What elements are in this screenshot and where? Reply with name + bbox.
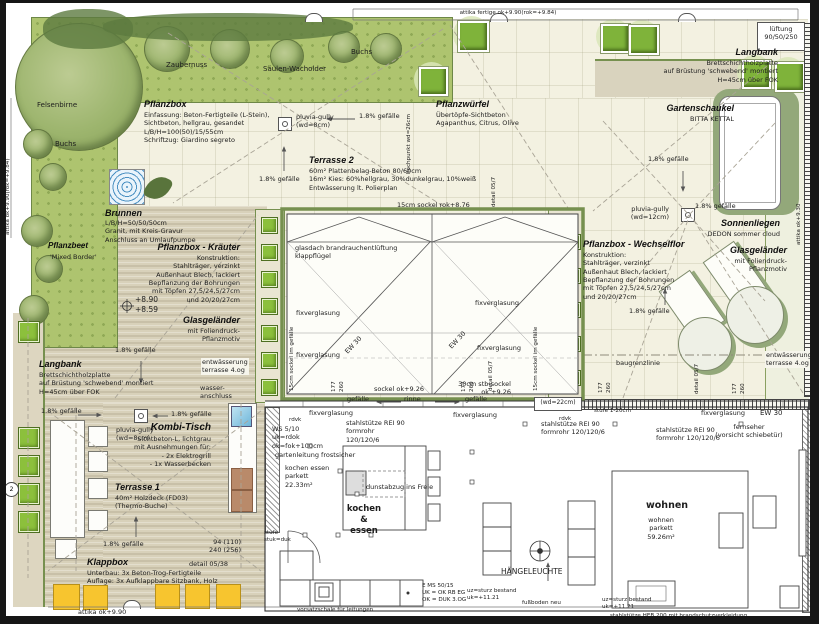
slope-label: 1.8% gefälle xyxy=(171,410,212,418)
glasgelaender-left-title: Glasgeländer xyxy=(183,315,240,327)
detail-057-label: detail 05/7 xyxy=(491,177,498,207)
pluvia-gully-8-label: pluvia-gully (wd=8cm) xyxy=(296,113,334,130)
pflanzwuerfel-icon xyxy=(601,24,630,53)
fixverglasung-label: fixverglasung xyxy=(309,409,353,417)
sonnenliege-icon xyxy=(678,317,732,371)
plant-box-icon xyxy=(261,325,278,342)
plant-box-icon xyxy=(261,298,278,315)
uz-sturz-label: uz=sturz bestand uk=+11.21 xyxy=(602,597,651,611)
fixverglasung-label: fixverglasung xyxy=(453,411,497,419)
chair-icon xyxy=(88,510,108,531)
plant-box-icon xyxy=(565,302,581,318)
pflanzwuerfel-icon xyxy=(419,67,448,96)
stahlstuetze-label: stahlstütze REI 90 formrohr 120/120/6 xyxy=(541,420,605,437)
sonnenliegen-body: DEDON sommer cloud xyxy=(707,230,780,238)
langbank-right-body: Brettschichtholzplatte auf Brüstung 'sch… xyxy=(664,59,778,84)
elektrogrill-icon xyxy=(231,490,253,512)
vorsatzschale-label: vorsatzschale für leitungen xyxy=(297,607,373,614)
tree-label-felsenbirne: Felsenbirne xyxy=(37,101,77,110)
section-marker-icon xyxy=(678,13,696,22)
glasgelaender-right-title: Glasgeländer xyxy=(730,245,787,257)
wd22-box: (wd=22cm) xyxy=(534,397,582,411)
pflanzwuerfel-icon xyxy=(629,25,659,55)
slope-label: 1.8% gefälle xyxy=(103,540,144,548)
hedge-icon xyxy=(43,9,133,49)
pflanzbeet-sub: 'Mixed Border' xyxy=(50,253,97,261)
height-points-label: +8.90 +8.59 xyxy=(135,295,158,314)
klappbox-body: Unterbau: 3x Beton-Trog-Fertigteile Aufl… xyxy=(87,569,218,586)
sockel-top-label: 15cm sockel rok+8.76 xyxy=(397,201,470,209)
wohnen-title-label: wohnen xyxy=(646,500,688,512)
wasserbecken-icon xyxy=(231,406,252,427)
detail-057-label: detail 05/7 xyxy=(488,361,495,391)
pflanzbox-title: Pflanzbox xyxy=(144,99,187,111)
section-marker-2: 2 xyxy=(4,482,19,497)
pflanzbeet-title: Pflanzbeet xyxy=(48,241,88,251)
gartenschaukel-title: Gartenschaukel xyxy=(666,103,734,115)
pluvia-gully-12-label: pluvia-gully (wd=12cm) xyxy=(631,205,669,222)
plant-box-icon xyxy=(261,217,278,234)
dining-table-icon xyxy=(50,420,85,538)
plant-box-icon xyxy=(261,379,278,396)
pflanzbox-body: Einfassung: Beton-Fertigteile (L-Stein),… xyxy=(144,111,270,144)
pflanzwuerfel-body: Übertöpfe-Sichtbeton Agapanthus, Citrus,… xyxy=(436,111,519,128)
wasseranschluss-label: wasser- anschluss xyxy=(200,384,232,401)
elektrogrill-icon xyxy=(231,468,253,490)
dim-260-label: 260 xyxy=(469,381,476,392)
tree-label-buchs2: Buchs xyxy=(351,48,372,57)
langbank-right-title: Langbank xyxy=(735,47,778,59)
plant-box-icon xyxy=(551,217,567,233)
ems-label: E MS 50/15 UK = OK RB EG OK = DUK 3.OG xyxy=(422,583,466,604)
attika-right-label: attika ok+9.30 xyxy=(796,203,803,245)
pflanzwuerfel-icon xyxy=(458,21,489,52)
terrasse2-body: 60m² Plattenbelag-Beton 80/60cm 16m² Kie… xyxy=(309,167,476,192)
stahlstuetze-label: stahlstütze REI 90 formrohr 120/120/6 xyxy=(346,419,405,444)
plant-box-icon xyxy=(261,271,278,288)
brunnen-body: L/B/H=50/50/50cm Granit, mit Kreis-Gravu… xyxy=(105,219,196,244)
hochpunkt-label: hochpunkt wd=26cm xyxy=(406,114,413,174)
glasdach-label: glasdach brandrauchentlüftung klappflüge… xyxy=(295,244,397,261)
plant-box-icon xyxy=(551,319,567,335)
klappbox-seat-icon xyxy=(185,584,210,609)
ew30-label: EW 30 xyxy=(760,409,782,418)
detail-0538-label: detail 05/38 xyxy=(189,560,228,568)
attika-top-label: attika fertige ok+9.90(rok=+9.84) xyxy=(383,10,633,17)
slope-label: 1.8% gefälle xyxy=(41,407,82,415)
klappbox-seat-icon xyxy=(53,584,80,610)
plan-sheet: 2 lüftung 90/50/250 (wd=22cm) attika fer… xyxy=(3,3,812,616)
pflanzwuerfel-icon xyxy=(775,62,805,92)
shrub-icon xyxy=(39,163,67,191)
fixverglasung-label: fixverglasung xyxy=(477,344,521,352)
frame-bottom xyxy=(0,616,819,624)
section-marker-icon xyxy=(305,13,323,22)
sonnenliegen-title: Sonnenliegen xyxy=(721,218,780,230)
dim-94-240-label: 94 (110) 240 (256) xyxy=(209,538,241,555)
pflanzbox-wechselflor-title: Pflanzbox - Wechselflor xyxy=(583,239,684,251)
dim-260-label: 260 xyxy=(606,382,613,393)
langbank-left-body: Brettschichtholzplatte auf Brüstung 'sch… xyxy=(39,371,153,396)
dim-177-label: 177 xyxy=(598,382,605,393)
klappbox-seat-icon xyxy=(155,584,180,609)
lueftung-label: lüftung 90/50/250 xyxy=(758,25,804,42)
rinne-label: rinne xyxy=(404,395,421,403)
frame-top xyxy=(0,0,819,3)
pluvia-gully-icon xyxy=(134,409,148,423)
shrub-icon xyxy=(370,33,402,65)
fixverglasung-label: fixverglasung xyxy=(296,351,340,359)
langbank-left-title: Langbank xyxy=(39,359,82,371)
entwaesserung-left-label: entwässerung terrasse 4.og xyxy=(201,358,249,375)
pluvia-gully-icon xyxy=(681,208,695,222)
dunstabzug-label: dunstabzug ins Freie xyxy=(366,483,433,491)
terrasse1-body: 40m² Holzdeck (FD03) (Thermo-Buche) xyxy=(115,494,188,511)
plant-box-icon xyxy=(565,336,581,352)
tree-label-buchs: Buchs xyxy=(55,140,76,149)
plant-box-icon xyxy=(261,244,278,261)
attika-left-label: attika ok+9.90(rok=+9.84) xyxy=(5,158,12,235)
chair-icon xyxy=(88,451,108,472)
glasgelaender-left-body: mit Foliendruck- Pflanzmotiv xyxy=(187,327,240,344)
frame-left xyxy=(0,0,6,624)
fixverglasung-label: fixverglasung xyxy=(296,309,340,317)
slope-label: 1.8% gefälle xyxy=(695,202,736,210)
plant-box-icon xyxy=(565,234,581,250)
plant-box-icon xyxy=(261,352,278,369)
terrasse2-title: Terrasse 2 xyxy=(309,155,354,167)
plant-box-icon xyxy=(18,483,40,505)
terrasse1-title: Terrasse 1 xyxy=(115,482,160,494)
brunnen-title: Brunnen xyxy=(105,208,142,220)
plant-box-icon xyxy=(551,353,567,369)
stufe-label: stufe stuk=duk xyxy=(264,530,291,544)
gartenleitung-label: gartenleitung frostsicher xyxy=(275,451,355,459)
tree-label-zaubernuss: Zaubernuss xyxy=(166,61,207,70)
pluvia-gully-icon xyxy=(278,117,292,131)
slope-label: 1.8% gefälle xyxy=(629,307,670,315)
pflanzwuerfel-title: Pflanzwürfel xyxy=(436,99,489,111)
fussboden-label: fußboden neu xyxy=(522,600,561,607)
gartenschaukel-body: BITTA KETTAL xyxy=(690,115,734,123)
plant-box-icon xyxy=(18,455,40,477)
plant-box-icon xyxy=(18,321,40,343)
klappbox-title: Klappbox xyxy=(87,557,128,569)
slope-label: 1.8% gefälle xyxy=(359,112,400,120)
rdvk-label: rdvk xyxy=(289,417,301,424)
ws510-label: WS 5/10 uk=rdok ok=fok+100cm xyxy=(272,425,323,450)
plant-box-icon xyxy=(565,268,581,284)
marker-2-label: 2 xyxy=(10,486,14,493)
slope-label: 1.8% gefälle xyxy=(259,175,300,183)
chair-icon xyxy=(88,426,108,447)
kochen-essen-label: kochen & essen xyxy=(338,504,390,537)
chair-icon xyxy=(55,539,77,559)
klappbox-seat-icon xyxy=(216,584,241,609)
klappbox-seat-icon xyxy=(83,585,108,610)
haengeleuchte-label: HÄNGELEUCHTE xyxy=(501,567,563,577)
baugrenzlinie-label: baugrenzlinie xyxy=(616,359,660,367)
frame-right xyxy=(810,0,819,624)
wohnen-raum-label: wohnen parkett 59.26m² xyxy=(630,516,692,541)
dim-177-label: 177 xyxy=(732,383,739,394)
wd22-label: (wd=22cm) xyxy=(535,399,581,407)
chair-icon xyxy=(88,478,108,499)
entwaesserung-right-label: entwässerung terrasse 4.og xyxy=(765,351,812,368)
slope-label: 1.8% gefälle xyxy=(648,155,689,163)
glasgelaender-right-body: mit Foliendruck- Pflanzmotiv xyxy=(734,257,787,274)
pflanzbox-wechselflor-body: Konstruktion: Stahlträger, verzinkt Auße… xyxy=(583,251,674,301)
fixverglasung-label: fixverglasung xyxy=(701,409,745,417)
dim-260-label: 260 xyxy=(339,381,346,392)
uz-sturz-label: uz=sturz bestand uk=+11.21 xyxy=(467,588,516,602)
plant-box-icon xyxy=(551,285,567,301)
sockel-ok-label: sockel ok+9.26 xyxy=(374,385,424,393)
fixverglasung-label: fixverglasung xyxy=(475,299,519,307)
kombi-tisch-body: Sichtbeton-L, lichtgrau mit Ausnehmungen… xyxy=(134,435,211,468)
plant-box-icon xyxy=(18,511,40,533)
plant-box-icon xyxy=(18,427,40,449)
kochen-raum-label: kochen essen parkett 22.33m² xyxy=(285,464,329,489)
shrub-buchs-icon xyxy=(23,129,53,159)
sockel-seite-label: 15cm sockel im gefälle xyxy=(533,327,540,391)
attika-bottom-label: attika ok+9.90 xyxy=(78,608,126,616)
dim-177-label: 177 xyxy=(461,381,468,392)
tree-label-saeulen-wacholder: Säulen-Wacholder xyxy=(263,65,326,74)
sonnenliege-icon xyxy=(726,286,784,344)
slope-label: 1.8% gefälle xyxy=(115,346,156,354)
brunnen-fountain-icon xyxy=(109,169,145,205)
plant-box-icon xyxy=(551,251,567,267)
dim-177-label: 177 xyxy=(331,381,338,392)
sockel-seite-label: 15cm sockel im gefälle xyxy=(289,327,296,391)
pflanzbox-kraeuter-body: Konstruktion: Stahlträger, verzinkt Auße… xyxy=(149,254,240,304)
fernseher-label: fernseher (vorsicht schiebetür) xyxy=(701,423,797,440)
plant-box-icon xyxy=(565,370,581,386)
dim-260-label: 260 xyxy=(740,383,747,394)
gefaelle-w-label: gefälle xyxy=(347,395,369,403)
shrub-icon xyxy=(328,31,360,63)
kombi-tisch-title: Kombi-Tisch xyxy=(151,422,211,435)
stufe-120-label: stufe 1-20cm xyxy=(594,408,631,415)
detail-057-label: detail 05/7 xyxy=(694,364,701,394)
pflanzbox-kraeuter-title: Pflanzbox - Kräuter xyxy=(157,242,240,254)
